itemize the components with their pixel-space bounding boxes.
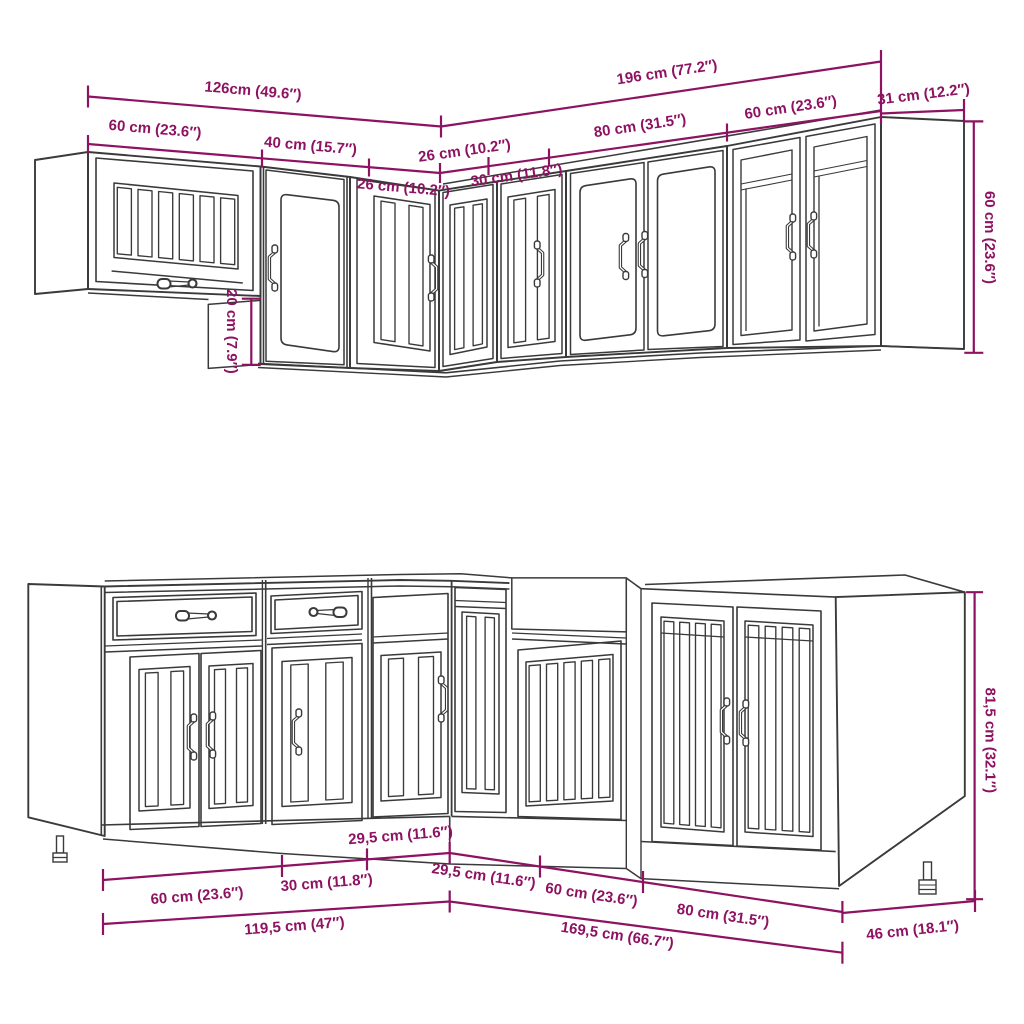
svg-text:60 cm (23.6″): 60 cm (23.6″) [981, 191, 998, 284]
svg-text:20 cm (7.9″): 20 cm (7.9″) [223, 289, 240, 374]
svg-text:81,5 cm (32.1″): 81,5 cm (32.1″) [981, 688, 998, 794]
